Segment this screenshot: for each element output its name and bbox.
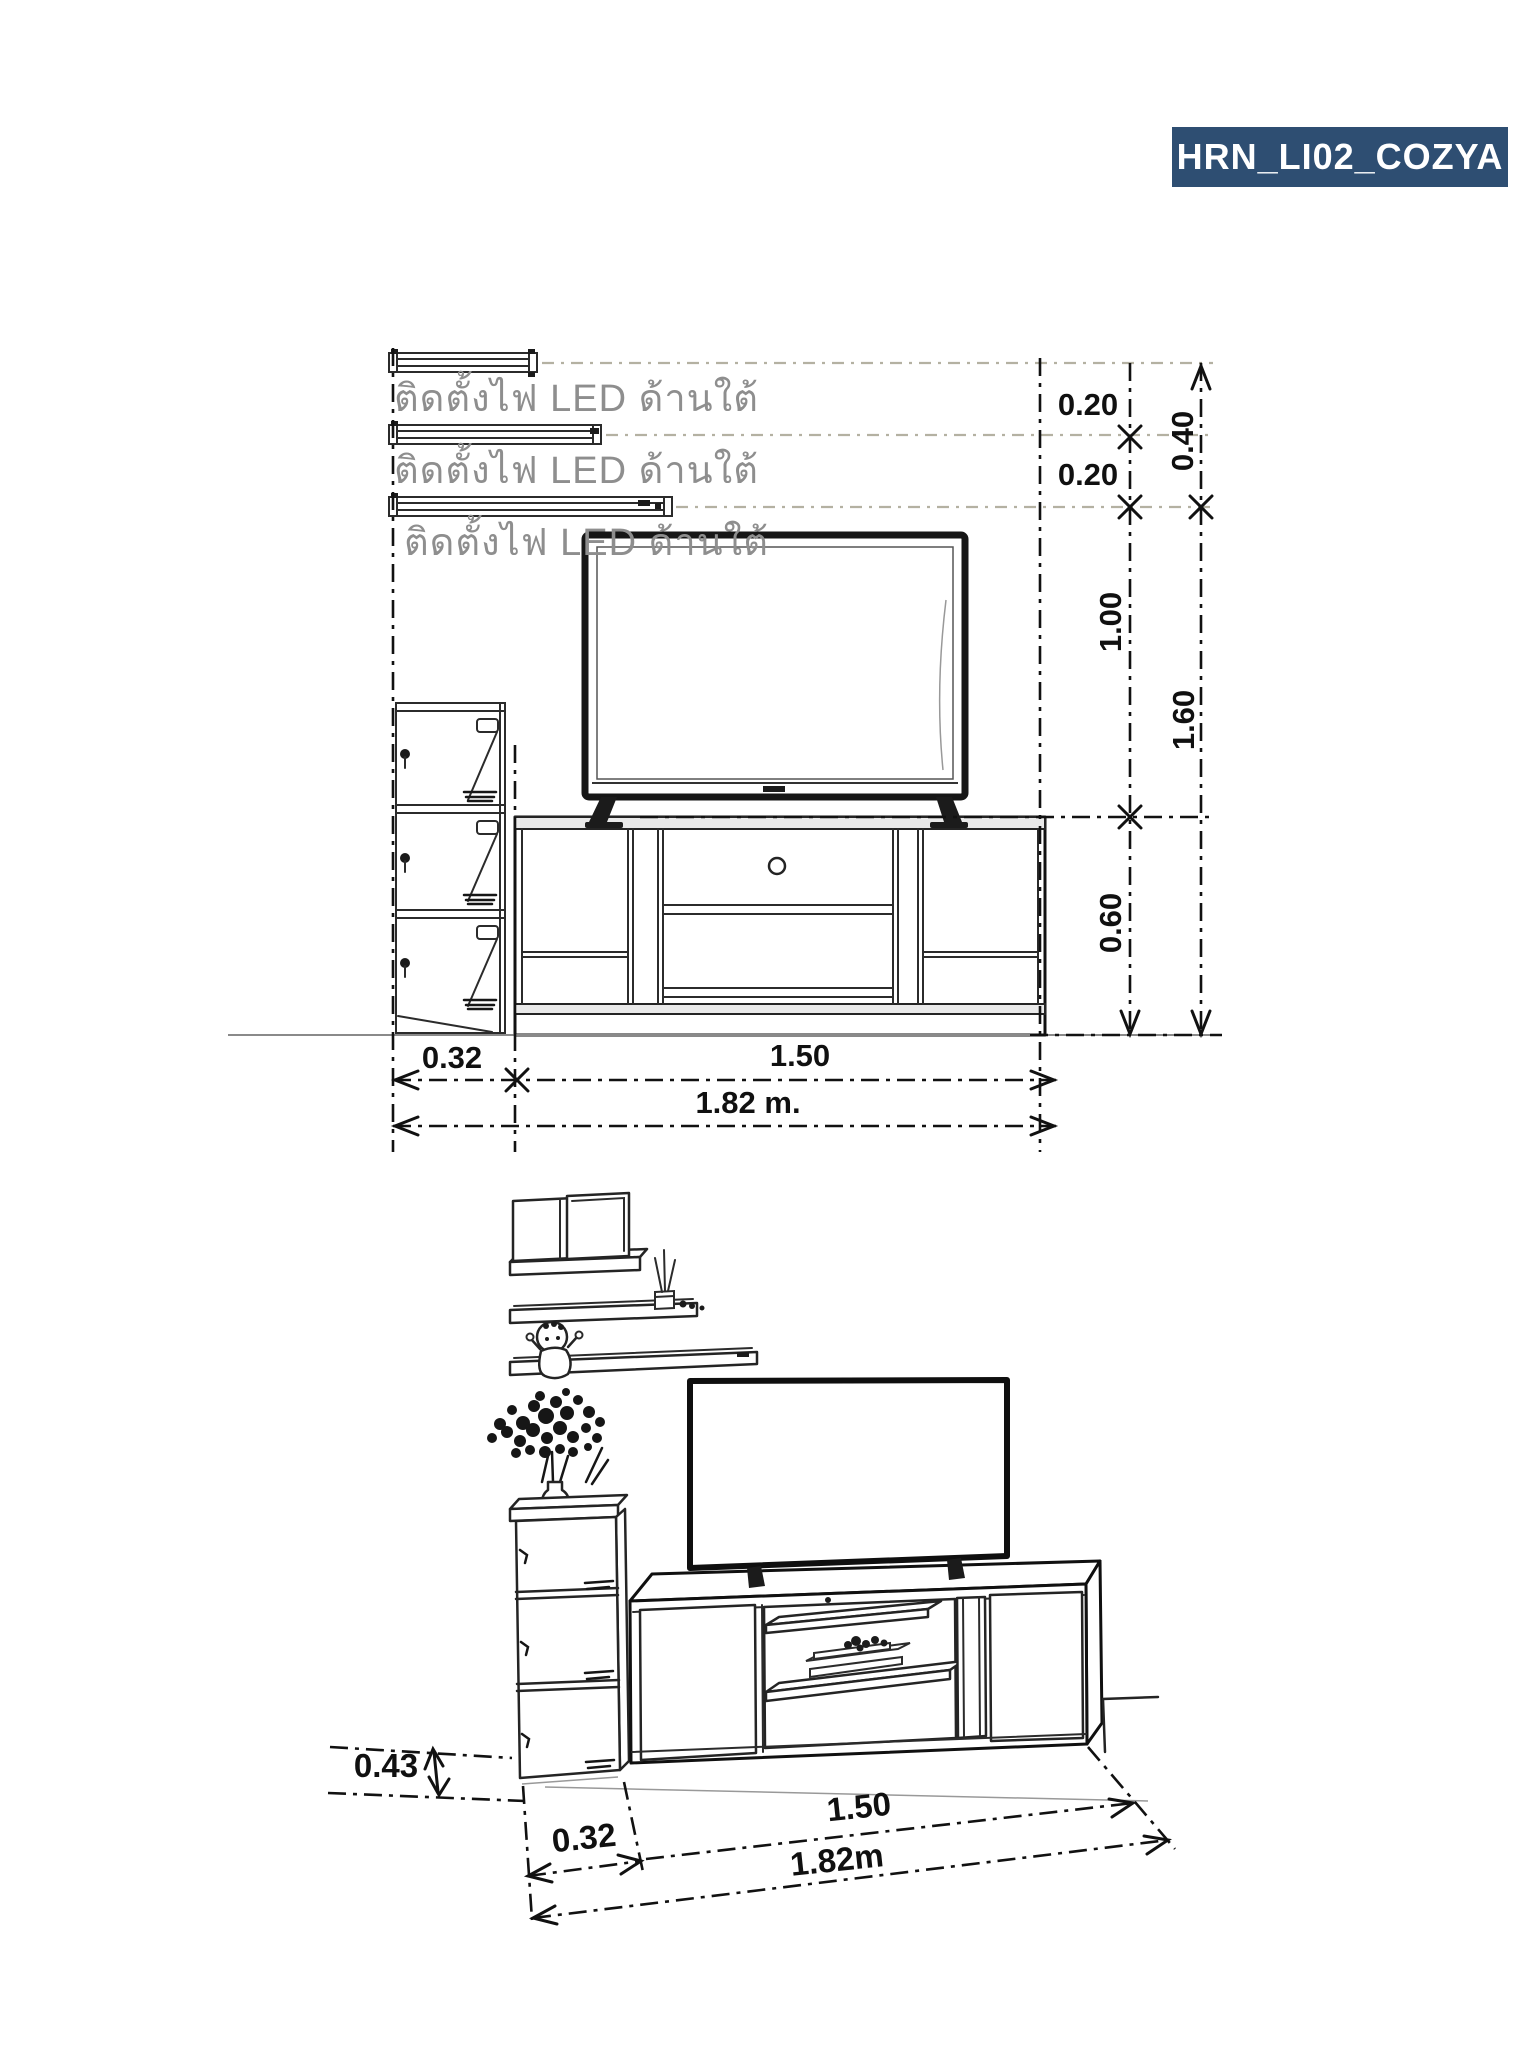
- dim-led-zone: 0.40: [1165, 411, 1200, 471]
- elevation-view: 0.20 0.20 0.40 1.00 1.60 0.60 0.32 1.50 …: [228, 348, 1222, 1152]
- reed-diffuser: [655, 1250, 705, 1311]
- picture-frames: [513, 1193, 629, 1261]
- storage-cabinet-perspective: [510, 1495, 629, 1784]
- led-shelf-3: [389, 493, 672, 516]
- dim-led-gap-1: 0.20: [1058, 387, 1118, 422]
- dimension-lines-perspective: [328, 1747, 1175, 1924]
- drawing-code-label: HRN_LI02_COZYA: [1177, 136, 1504, 178]
- technical-drawing-canvas: 0.20 0.20 0.40 1.00 1.60 0.60 0.32 1.50 …: [0, 0, 1536, 2048]
- dim-tv-zone: 1.00: [1093, 592, 1128, 652]
- tv-perspective: [690, 1380, 1007, 1568]
- tv-foot-right: [930, 797, 968, 828]
- dim-led-gap-2: 0.20: [1058, 457, 1118, 492]
- led-note-2: ติดตั้งไฟ LED ด้านใต้: [394, 442, 759, 492]
- dim-cabinet-depth: 0.43: [354, 1747, 418, 1784]
- tv-stand-front: [515, 817, 1045, 1035]
- page: 0.20 0.20 0.40 1.00 1.60 0.60 0.32 1.50 …: [0, 0, 1536, 2048]
- tv-stand-perspective: [630, 1558, 1102, 1763]
- led-note-3: ติดตั้งไฟ LED ด้านใต้: [404, 514, 769, 564]
- dim-total-width: 1.82 m.: [695, 1085, 800, 1120]
- led-note-1: ติดตั้งไฟ LED ด้านใต้: [394, 370, 759, 420]
- tv-front: [585, 535, 968, 828]
- led-shelf-2: [389, 421, 601, 444]
- dim-stand-height: 0.60: [1093, 893, 1128, 953]
- wall-corner-line: [1103, 1697, 1158, 1752]
- dim-stand-width: 1.50: [770, 1038, 830, 1073]
- led-shelf-1: [389, 349, 537, 377]
- dim-stand-width-p: 1.50: [825, 1785, 893, 1829]
- drawing-code-badge: HRN_LI02_COZYA: [1172, 127, 1508, 187]
- flower-bouquet: [487, 1388, 608, 1484]
- dim-cabinet-width-p: 0.32: [550, 1816, 618, 1860]
- tv-foot-left: [585, 797, 623, 828]
- dim-cabinet-width: 0.32: [422, 1040, 482, 1075]
- perspective-view: 0.43 0.32 1.50 1.82m: [328, 1193, 1175, 1924]
- dim-wall-height: 1.60: [1166, 690, 1201, 750]
- side-cabinet-front: [396, 703, 505, 1033]
